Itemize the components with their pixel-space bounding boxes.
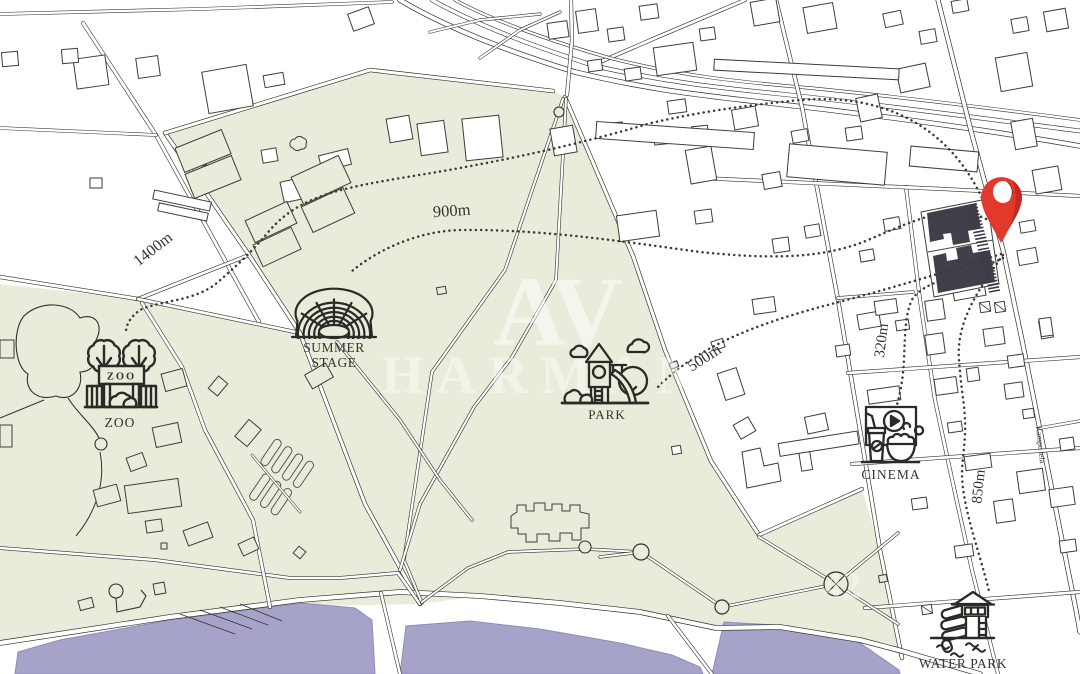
svg-text:CINEMA: CINEMA [861, 467, 920, 482]
svg-text:ZOO: ZOO [107, 372, 136, 383]
svg-text:42: 42 [823, 565, 861, 607]
svg-text:900m: 900m [432, 200, 471, 222]
svg-text:HARMAN: HARMAN [382, 345, 709, 405]
svg-text:ZOO: ZOO [105, 415, 136, 430]
svg-text:SUMMERSTAGE: SUMMERSTAGE [303, 340, 365, 370]
svg-text:PARK: PARK [588, 407, 625, 422]
svg-text:WATER PARK: WATER PARK [919, 656, 1007, 671]
